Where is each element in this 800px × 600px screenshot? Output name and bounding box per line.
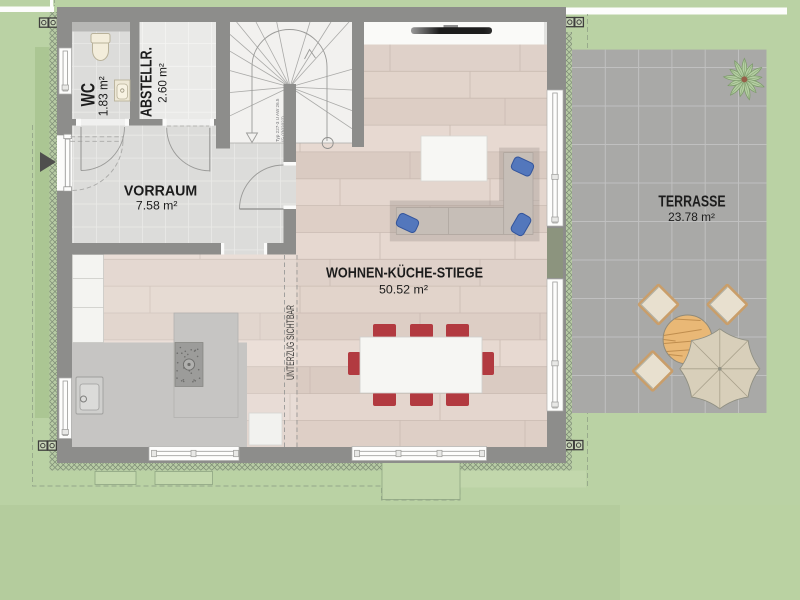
svg-text:7.58 m²: 7.58 m² <box>136 199 178 213</box>
svg-text:Typ 227-3 U AW 26.5: Typ 227-3 U AW 26.5 <box>275 98 280 142</box>
svg-text:1.83 m²: 1.83 m² <box>96 76 111 117</box>
svg-text:23.78 m²: 23.78 m² <box>668 211 715 224</box>
svg-text:WOHNEN-KÜCHE-STIEGE: WOHNEN-KÜCHE-STIEGE <box>326 265 483 282</box>
svg-text:ABSTELLR.: ABSTELLR. <box>139 47 156 117</box>
svg-text:VORRAUM: VORRAUM <box>124 182 197 199</box>
svg-text:2.60 m²: 2.60 m² <box>158 63 170 103</box>
svg-text:TERRASSE: TERRASSE <box>658 193 725 210</box>
svg-text:50.52 m²: 50.52 m² <box>379 283 428 297</box>
svg-text:UNTERZUG SICHTBAR: UNTERZUG SICHTBAR <box>285 305 297 380</box>
